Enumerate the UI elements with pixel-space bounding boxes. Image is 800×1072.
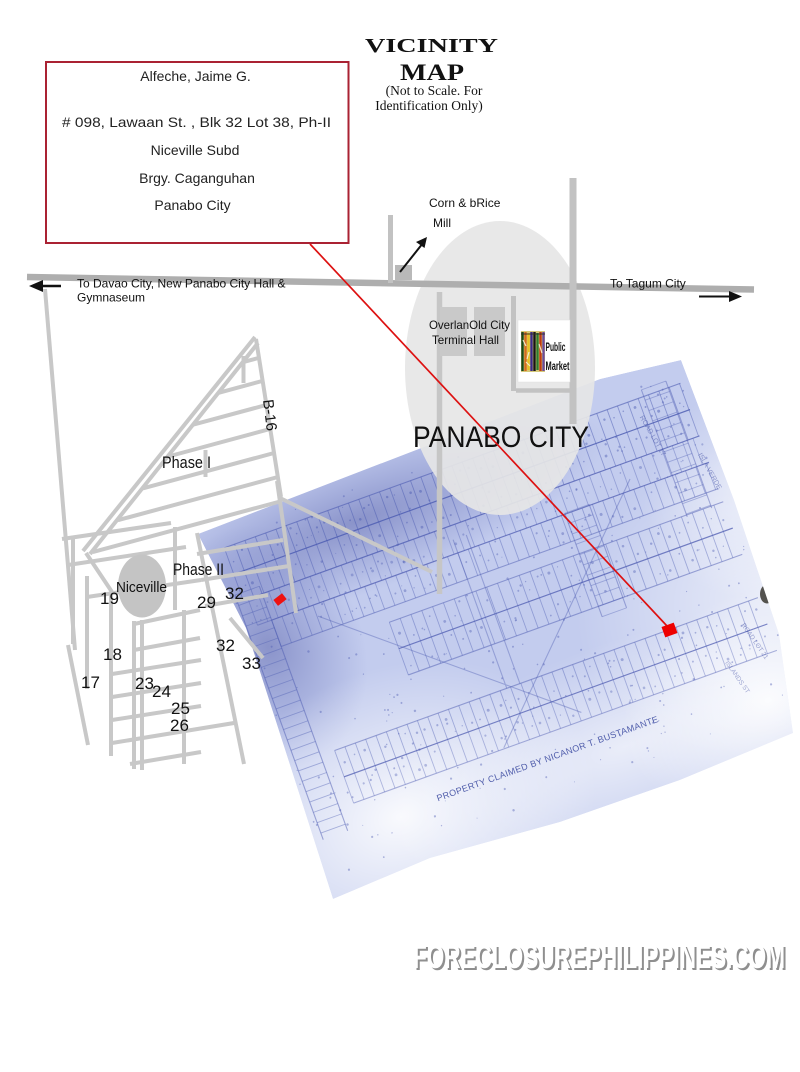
svg-text:MAP: MAP: [400, 60, 464, 85]
svg-text:29: 29: [197, 593, 216, 612]
svg-text:19: 19: [100, 589, 119, 608]
svg-text:18: 18: [103, 645, 122, 664]
svg-text:Identification Only): Identification Only): [375, 98, 483, 113]
svg-text:VICINITY: VICINITY: [365, 35, 499, 57]
svg-text:Gymnaseum: Gymnaseum: [77, 291, 145, 305]
svg-text:33: 33: [242, 654, 261, 673]
svg-text:OverlanOld City: OverlanOld City: [429, 318, 510, 332]
svg-text:To Davao City, New Panabo City: To Davao City, New Panabo City Hall &: [77, 277, 286, 291]
svg-text:32: 32: [216, 636, 235, 655]
svg-text:Mill: Mill: [433, 216, 451, 230]
svg-text:26: 26: [170, 716, 189, 735]
svg-text:Market: Market: [546, 359, 570, 373]
svg-text:24: 24: [152, 682, 171, 701]
svg-text:Panabo City: Panabo City: [154, 197, 230, 213]
svg-text:17: 17: [81, 673, 100, 692]
svg-text:Terminal Hall: Terminal Hall: [432, 333, 499, 347]
svg-text:FORECLOSUREPHILIPPINES.COM: FORECLOSUREPHILIPPINES.COM: [413, 938, 785, 975]
svg-text:Niceville Subd: Niceville Subd: [151, 142, 240, 158]
svg-text:Public: Public: [546, 340, 566, 354]
svg-text:Niceville: Niceville: [116, 579, 167, 596]
svg-text:# 098, Lawaan St. , Blk 32: # 098, Lawaan St. , Blk 32 Lot 38, Ph-II: [62, 114, 331, 130]
svg-text:Brgy. Caganguhan: Brgy. Caganguhan: [139, 170, 255, 186]
svg-text:Corn & bRice: Corn & bRice: [429, 196, 501, 210]
svg-text:Phase I: Phase I: [162, 453, 211, 472]
svg-text:(Not to Scale. For: (Not to Scale. For: [386, 83, 483, 98]
svg-text:To Tagum City: To Tagum City: [610, 277, 686, 291]
svg-text:Alfeche, Jaime G.: Alfeche, Jaime G.: [140, 68, 251, 84]
svg-text:32: 32: [225, 584, 244, 603]
svg-text:Phase II: Phase II: [173, 560, 224, 579]
